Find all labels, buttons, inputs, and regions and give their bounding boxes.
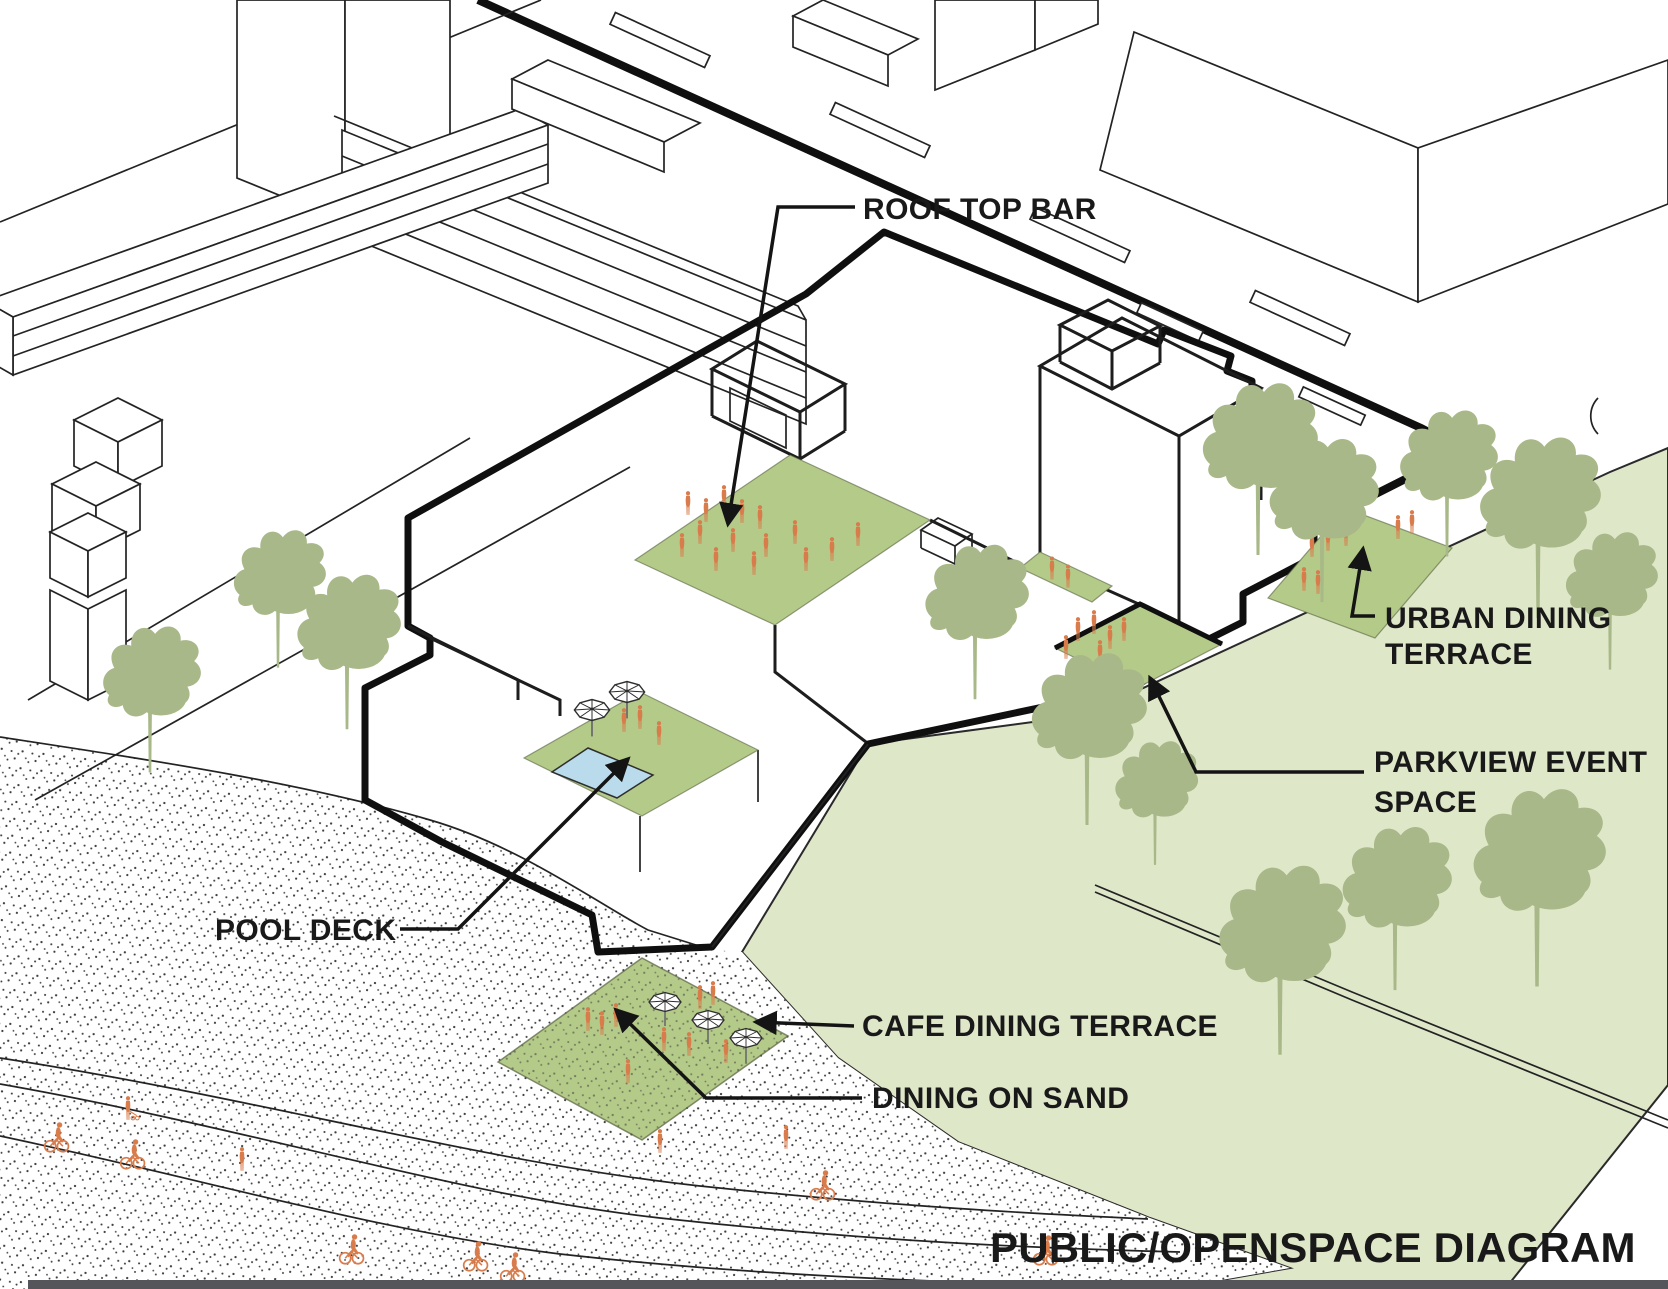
parkview-event-space-label-line1: PARKVIEW EVENT [1374,746,1647,779]
context-box-topcenter-3 [935,0,1098,90]
openspace-diagram-page: ROOF TOP BAR URBAN DINING TERRACE PARKVI… [0,0,1668,1289]
curb-return-arc [1591,398,1598,434]
site-diagram: ROOF TOP BAR URBAN DINING TERRACE PARKVI… [0,0,1668,1289]
urban-dining-terrace-label-line1: URBAN DINING [1385,602,1611,635]
cafe-dining-terrace-label: CAFE DINING TERRACE [862,1010,1218,1043]
urban-dining-terrace-label-line2: TERRACE [1385,638,1533,671]
footer-bar [28,1280,1668,1289]
tree-icon [297,575,400,730]
diagram-title: PUBLIC/OPENSPACE DIAGRAM [990,1224,1636,1271]
roof-top-bar-label: ROOF TOP BAR [863,193,1097,226]
tree-icon [925,545,1028,700]
courtyard-green-strip [1020,552,1112,602]
context-block-topright [1100,32,1668,302]
parkview-event-space-label-line2: SPACE [1374,786,1477,819]
roof-top-bar-area [635,455,930,625]
dining-on-sand-label: DINING ON SAND [872,1082,1129,1115]
tree-icon [103,626,201,772]
context-box-topcenter-2 [793,0,918,86]
pool-deck-label: POOL DECK [215,914,396,947]
